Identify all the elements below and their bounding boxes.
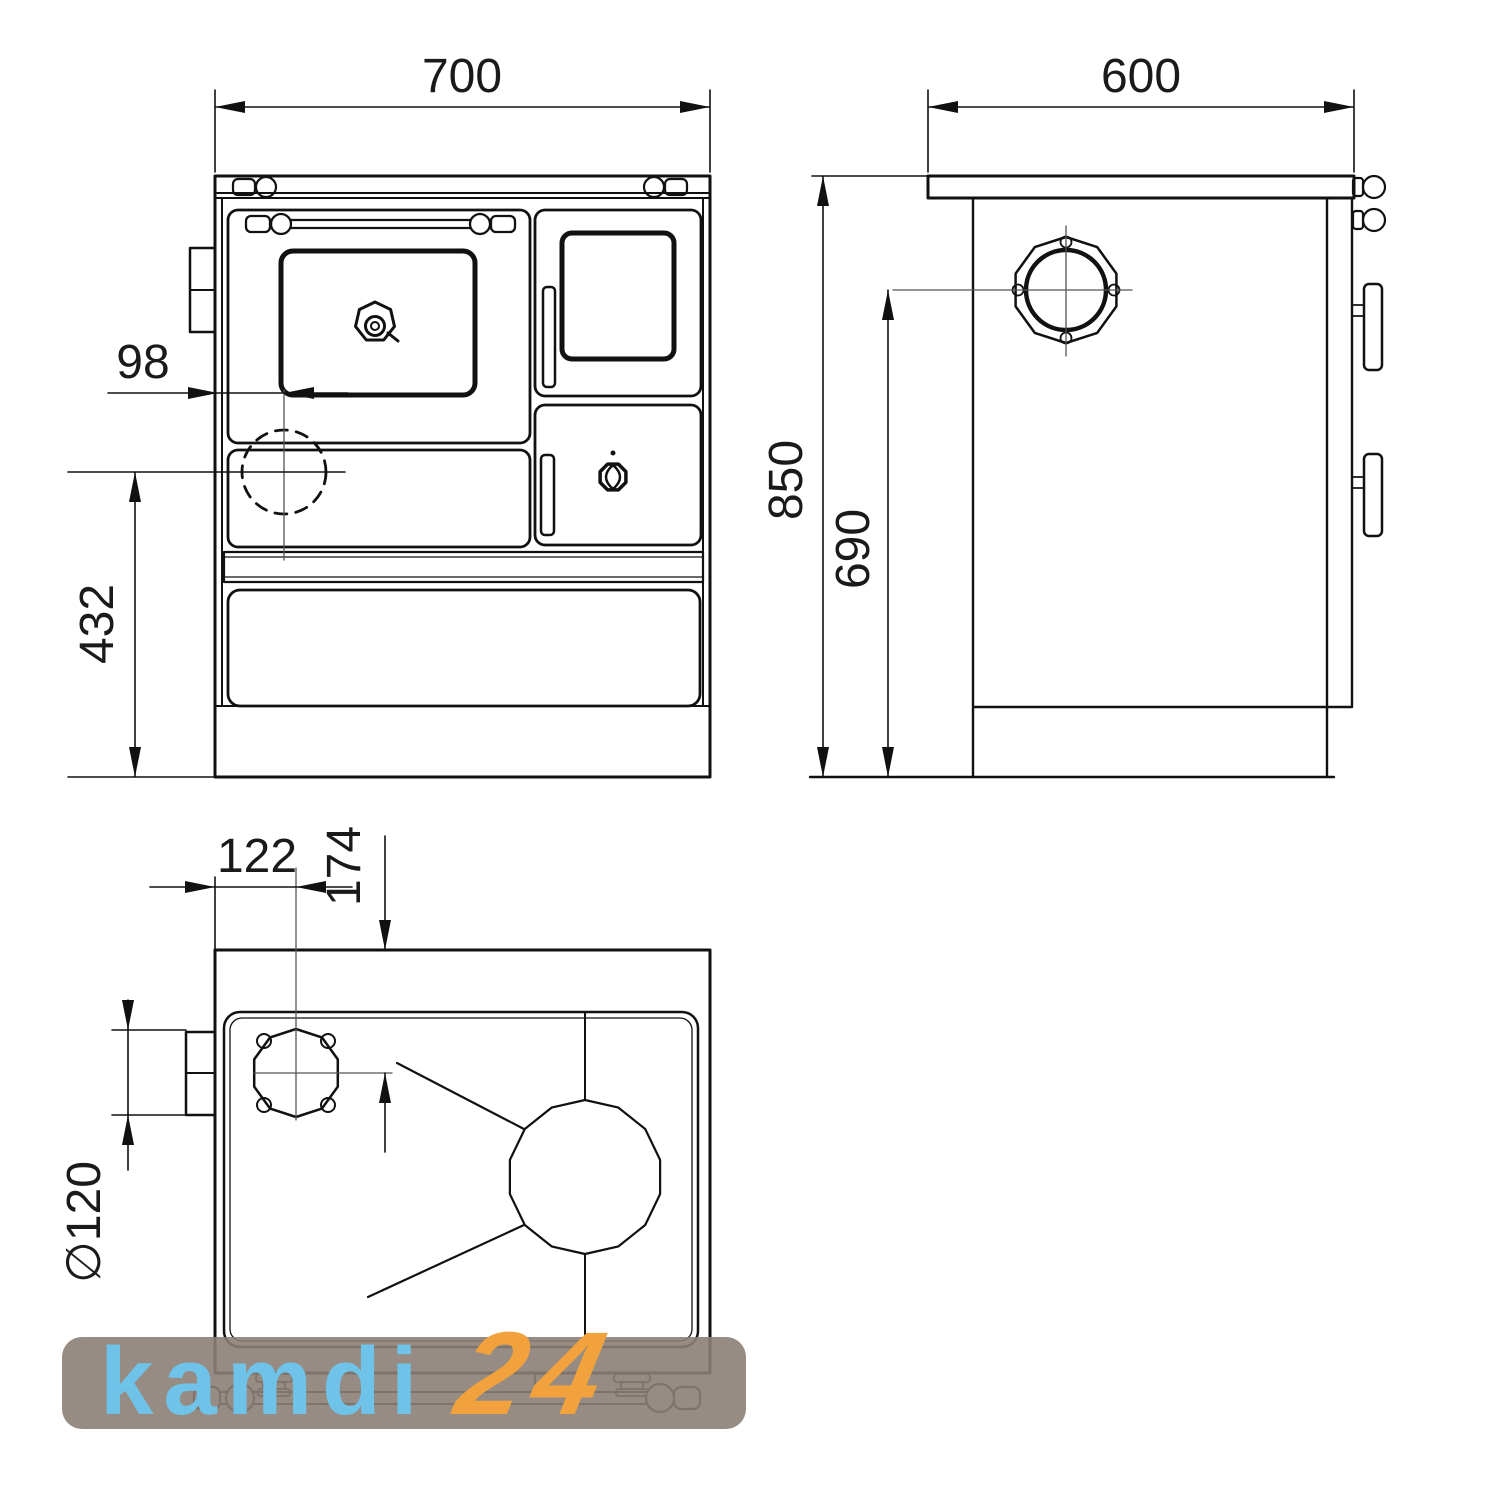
dim-174-arrow-down bbox=[379, 920, 391, 950]
dim-432-arrow-down bbox=[129, 747, 141, 777]
dim-120-label: ∅120 bbox=[58, 1161, 111, 1283]
oven-door-knob-icon bbox=[356, 302, 399, 341]
oven-knob-center bbox=[371, 322, 379, 330]
ash-door-knob-icon bbox=[600, 451, 626, 490]
ash-door-panel bbox=[535, 405, 701, 545]
oven-rail-ball-right bbox=[470, 214, 490, 234]
dim-432-arrow-up bbox=[129, 472, 141, 502]
dim-600-arrow-left bbox=[928, 101, 958, 113]
oven-rail-bracket-left bbox=[246, 216, 270, 232]
side-rail-ball-2 bbox=[1363, 209, 1385, 231]
hob-panel-frame bbox=[228, 450, 530, 547]
side-body bbox=[810, 176, 1354, 777]
cooktop-plate-diagonals bbox=[368, 1063, 524, 1297]
front-outline bbox=[215, 176, 710, 777]
ash-knob-octagon bbox=[600, 464, 626, 490]
oven-panel bbox=[228, 210, 530, 443]
dim-600-label: 600 bbox=[1101, 50, 1181, 103]
watermark: kamdi 24 bbox=[62, 1308, 746, 1440]
hotplate-polygon bbox=[510, 1100, 660, 1254]
oven-handle-rail bbox=[246, 214, 515, 234]
wood-drawer-front bbox=[228, 590, 700, 706]
dim-122-arrow-left bbox=[185, 881, 215, 893]
ash-knob-lens bbox=[606, 465, 620, 489]
oven-rail-bracket-right bbox=[491, 216, 515, 232]
side-flue-collar bbox=[893, 226, 1132, 356]
dim-120-arrow-down bbox=[122, 1000, 134, 1030]
dim-600-arrow-right bbox=[1324, 101, 1354, 113]
side-handle-stem-1 bbox=[1352, 305, 1364, 316]
oven-rail-bar bbox=[291, 220, 470, 228]
oven-knob-lever bbox=[388, 333, 398, 341]
dim-850-lines bbox=[812, 176, 930, 777]
trim-band bbox=[224, 552, 703, 582]
side-rail-bracket-2 bbox=[1353, 211, 1363, 229]
ash-door-handle-bar bbox=[541, 455, 554, 535]
dimension-front-flue-height: 432 bbox=[68, 472, 345, 777]
dim-700-arrow-left bbox=[215, 101, 245, 113]
dim-700-arrow-right bbox=[680, 101, 710, 113]
top-body bbox=[186, 950, 710, 1373]
hotplate-ring bbox=[510, 1100, 660, 1254]
dim-98-label: 98 bbox=[116, 336, 169, 389]
dim-120-arrow-up bbox=[122, 1115, 134, 1145]
firebox-window bbox=[562, 233, 674, 359]
dim-174-label: 174 bbox=[318, 826, 371, 906]
dim-700-label: 700 bbox=[422, 50, 502, 103]
side-view: 600 850 690 bbox=[760, 50, 1385, 777]
dim-174-arrow-up bbox=[379, 1073, 391, 1103]
side-handle-stem-2 bbox=[1352, 477, 1364, 488]
side-rail-ball-top bbox=[1363, 176, 1385, 198]
ash-door-frame bbox=[535, 405, 701, 545]
top-outline bbox=[215, 950, 710, 1373]
dimension-side-flue-center-height: 690 bbox=[827, 290, 894, 777]
cooktop-panel-outer bbox=[224, 1012, 698, 1347]
stove-technical-drawing: 700 98 432 bbox=[0, 0, 1500, 1500]
side-handle-bar-1 bbox=[1364, 284, 1382, 370]
cooktop-panel-inner bbox=[230, 1018, 692, 1341]
side-top-plate bbox=[928, 176, 1354, 198]
dimension-side-height: 850 bbox=[760, 176, 930, 777]
dim-850-arrow-up bbox=[817, 176, 829, 206]
dim-432-label: 432 bbox=[71, 584, 124, 664]
side-handle-bar-2 bbox=[1364, 454, 1382, 536]
side-front-fittings bbox=[1352, 176, 1385, 536]
dim-850-label: 850 bbox=[760, 440, 813, 520]
dimension-side-depth: 600 bbox=[928, 50, 1354, 172]
firebox-panel bbox=[535, 210, 701, 396]
dimension-top-flue-y: 174 bbox=[318, 826, 391, 1152]
dim-850-arrow-down bbox=[817, 747, 829, 777]
oven-rail-ball-left bbox=[271, 214, 291, 234]
oven-knob-ring bbox=[366, 317, 385, 336]
dim-690-label: 690 bbox=[827, 509, 880, 589]
trim-band-lines bbox=[224, 557, 703, 577]
watermark-brand: kamdi bbox=[100, 1328, 427, 1435]
drawing-page: 700 98 432 bbox=[0, 0, 1500, 1500]
wood-drawer bbox=[228, 590, 700, 706]
dimension-front-width: 700 bbox=[215, 50, 710, 172]
dim-122-label: 122 bbox=[217, 830, 297, 883]
dim-690-arrow-up bbox=[882, 290, 894, 320]
watermark-number: 24 bbox=[445, 1308, 626, 1440]
side-body-lines bbox=[810, 198, 1352, 777]
firebox-handle-bar bbox=[543, 287, 555, 387]
front-body bbox=[190, 176, 710, 777]
ash-knob-dot bbox=[611, 451, 616, 456]
front-view: 700 98 432 bbox=[68, 50, 710, 777]
hob-panel bbox=[228, 450, 530, 547]
dimension-flue-diameter: ∅120 bbox=[58, 1000, 186, 1283]
dim-690-arrow-down bbox=[882, 747, 894, 777]
